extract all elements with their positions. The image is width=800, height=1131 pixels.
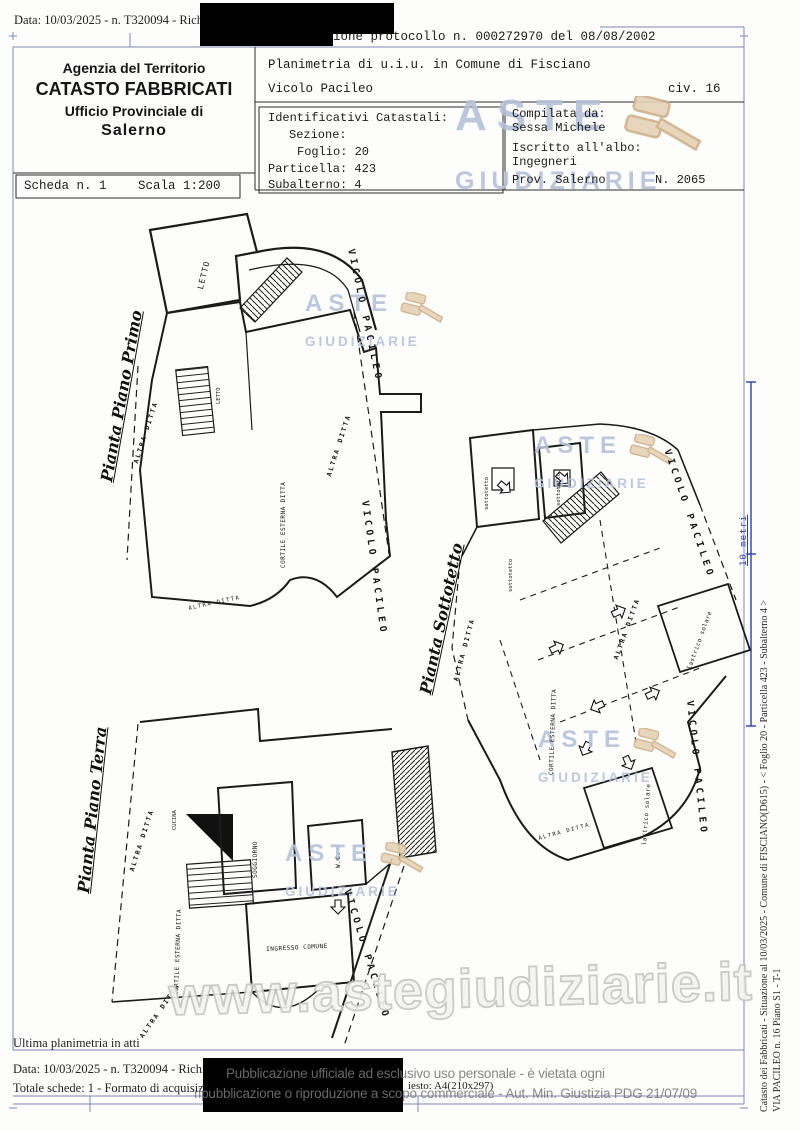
compilata-label: Compilata da:: [512, 107, 606, 121]
prov-number: N. 2065: [655, 173, 705, 187]
footer-ultima: Ultima planimetria in atti: [13, 1036, 140, 1051]
cortile-label: CORTILE ESTERNA DITTA: [280, 482, 287, 568]
scale-bar-label: 10 metri: [739, 515, 749, 566]
identificativi-subalterno: Subalterno: 4: [268, 178, 362, 192]
margin-line2: VIA PACILEO n. 16 Piano S1 - T-1: [771, 552, 784, 1112]
room-label-sottotetto: sottotetto: [484, 477, 490, 510]
identificativi-particella: Particella: 423: [268, 162, 376, 176]
watermark-aste-text: ASTE: [305, 292, 393, 316]
prov-label: Prov. Salerno: [512, 173, 606, 187]
compilata-name: Sessa Michele: [512, 121, 606, 135]
agency-city: Salerno: [13, 122, 255, 140]
gavel-icon: [373, 842, 426, 882]
redaction-box-top-right: [330, 3, 394, 34]
gavel-icon: [626, 728, 679, 768]
planimetria-line: Planimetria di u.i.u. in Comune di Fisci…: [268, 58, 591, 72]
legal-overlay-line2: ripubblicazione o riproduzione a scopo c…: [194, 1086, 697, 1101]
watermark-giudiziarie-text: GIUDIZIARIE: [285, 885, 426, 899]
civic-number: civ. 16: [668, 82, 721, 96]
agency-name: Agenzia del Territorio: [13, 60, 255, 76]
identificativi-title: Identificativi Catastali:: [268, 111, 448, 125]
aste-watermark-bottom-left: ASTE GIUDIZIARIE: [285, 842, 426, 899]
watermark-aste-text: ASTE: [534, 434, 622, 458]
room-label-sottotetto: sottotetto: [556, 473, 562, 506]
agency-office: Ufficio Provinciale di: [13, 103, 255, 119]
room-label-wc: W.C.: [335, 852, 342, 868]
room-label-letto: LETTO: [216, 387, 222, 404]
footer-data-line: Data: 10/03/2025 - n. T320094 - Richiede…: [13, 1062, 233, 1077]
albo-label: Iscritto all'albo:: [512, 141, 642, 155]
aste-watermark-mid-right-low: ASTE GIUDIZIARIE: [538, 728, 679, 785]
legal-overlay-line1: Pubblicazione ufficiale ad esclusivo uso…: [226, 1066, 605, 1081]
watermark-giudiziarie-text: GIUDIZIARIE: [538, 771, 679, 785]
identificativi-foglio: Foglio: 20: [297, 145, 369, 159]
room-label-soggiorno: SOGGIORNO: [252, 841, 259, 878]
identificativi-sezione: Sezione:: [289, 128, 347, 142]
gavel-icon: [393, 292, 446, 332]
room-label-sottotetto: sottotetto: [508, 559, 514, 592]
scala-label: Scala 1:200: [138, 179, 221, 193]
albo-value: Ingegneri: [512, 155, 577, 169]
margin-line1: Catasto dei Fabbricati - Situazione al 1…: [758, 552, 771, 1112]
room-label-cucina: CUCINA: [172, 810, 178, 830]
cadastral-document-page: { "top": { "data_line": "Data: 10/03/202…: [0, 0, 800, 1131]
margin-reference-text: Catasto dei Fabbricati - Situazione al 1…: [758, 552, 784, 1112]
redaction-box-top: [200, 3, 333, 46]
plan-piano-primo: [127, 214, 421, 606]
watermark-aste-text: ASTE: [285, 842, 373, 866]
scheda-label: Scheda n. 1: [24, 179, 107, 193]
agency-catasto: CATASTO FABBRICATI: [13, 79, 255, 100]
street-line: Vicolo Pacileo: [268, 82, 373, 96]
